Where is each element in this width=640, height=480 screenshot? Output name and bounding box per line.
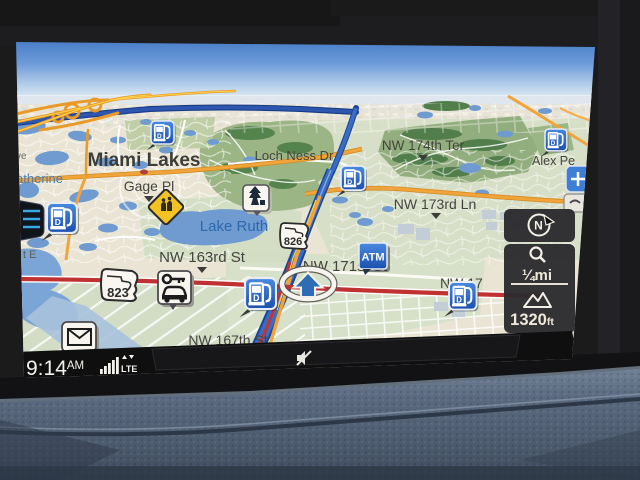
svg-text:NW 173rd Ln: NW 173rd Ln [394,196,476,212]
svg-text:823: 823 [107,285,129,300]
svg-text:N: N [534,219,543,233]
svg-text:Miami Lakes: Miami Lakes [88,150,201,171]
svg-text:826: 826 [284,236,302,248]
svg-text:NW 163rd St: NW 163rd St [159,249,246,266]
svg-text:NW 174th Ter: NW 174th Ter [382,138,465,153]
svg-text:¼mi: ¼mi [522,267,552,284]
svg-text:Lake Ruth: Lake Ruth [200,218,268,235]
svg-text:t E: t E [23,249,36,261]
svg-text:LTE: LTE [121,364,137,374]
svg-text:Loch Ness Dr: Loch Ness Dr [255,148,334,163]
svg-text:atherine: atherine [16,171,63,186]
svg-text:ATM: ATM [361,252,384,264]
